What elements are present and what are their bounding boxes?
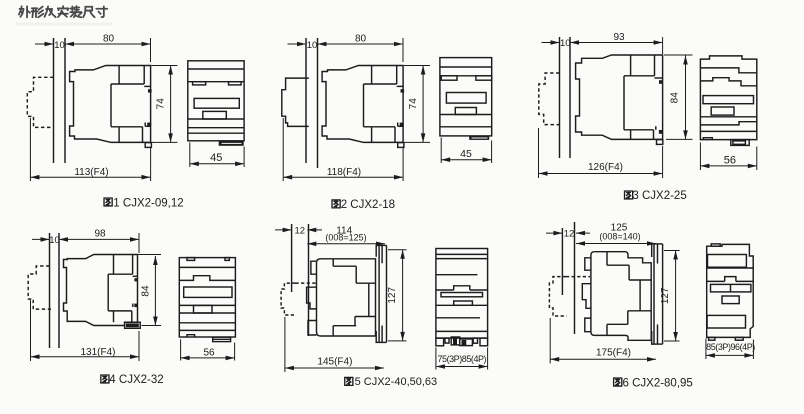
svg-text:84: 84: [140, 285, 151, 297]
svg-text:45: 45: [210, 152, 222, 164]
svg-text:(008=140): (008=140): [599, 231, 640, 241]
svg-text:131(F4): 131(F4): [80, 347, 115, 358]
svg-text:75(3P)85(4P): 75(3P)85(4P): [437, 354, 486, 364]
svg-text:5 CJX2-40,50,63: 5 CJX2-40,50,63: [355, 376, 438, 388]
svg-text:4 CJX2-32: 4 CJX2-32: [109, 374, 163, 386]
svg-text:(008=125): (008=125): [325, 233, 366, 243]
svg-text:56: 56: [724, 154, 736, 166]
svg-text:84: 84: [670, 92, 681, 104]
svg-text:12: 12: [295, 225, 306, 236]
svg-text:175(F4): 175(F4): [596, 348, 631, 359]
svg-text:56: 56: [203, 348, 215, 359]
svg-text:3 CJX2-25: 3 CJX2-25: [632, 190, 686, 202]
svg-text:1 CJX2-09,12: 1 CJX2-09,12: [113, 197, 183, 209]
svg-text:12: 12: [564, 229, 575, 240]
svg-text:85(3P)96(4P): 85(3P)96(4P): [706, 342, 755, 352]
svg-text:80: 80: [355, 34, 367, 45]
svg-text:127: 127: [660, 287, 671, 304]
svg-text:74: 74: [156, 98, 167, 110]
svg-text:10: 10: [49, 235, 60, 246]
svg-text:10: 10: [307, 40, 318, 51]
svg-text:98: 98: [94, 228, 106, 239]
svg-text:6 CJX2-80,95: 6 CJX2-80,95: [623, 378, 693, 390]
svg-text:45: 45: [460, 148, 472, 160]
svg-text:10: 10: [560, 38, 571, 49]
svg-text:80: 80: [103, 34, 115, 45]
svg-text:118(F4): 118(F4): [327, 167, 361, 178]
svg-text:127: 127: [387, 287, 398, 304]
svg-text:126(F4): 126(F4): [588, 162, 623, 173]
svg-text:113(F4): 113(F4): [74, 167, 108, 178]
svg-text:10: 10: [54, 40, 65, 51]
svg-text:2 CJX2-18: 2 CJX2-18: [341, 199, 395, 211]
svg-text:93: 93: [613, 32, 625, 43]
svg-text:145(F4): 145(F4): [317, 356, 352, 367]
svg-text:74: 74: [408, 98, 419, 110]
